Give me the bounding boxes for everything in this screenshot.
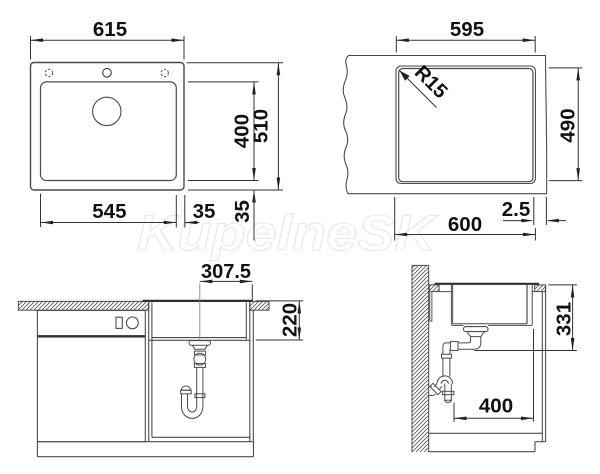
svg-text:331: 331 xyxy=(553,302,576,336)
svg-text:R15: R15 xyxy=(410,62,452,104)
svg-text:35: 35 xyxy=(193,200,216,223)
svg-text:595: 595 xyxy=(450,18,484,41)
svg-text:600: 600 xyxy=(448,213,482,236)
svg-text:2.5: 2.5 xyxy=(502,198,531,221)
svg-text:510: 510 xyxy=(250,109,273,143)
svg-text:615: 615 xyxy=(93,18,127,41)
svg-text:490: 490 xyxy=(557,108,580,142)
svg-text:307.5: 307.5 xyxy=(201,261,251,283)
svg-text:400: 400 xyxy=(479,395,513,418)
svg-text:220: 220 xyxy=(279,303,302,337)
svg-text:35: 35 xyxy=(231,200,254,223)
svg-text:545: 545 xyxy=(92,200,126,223)
